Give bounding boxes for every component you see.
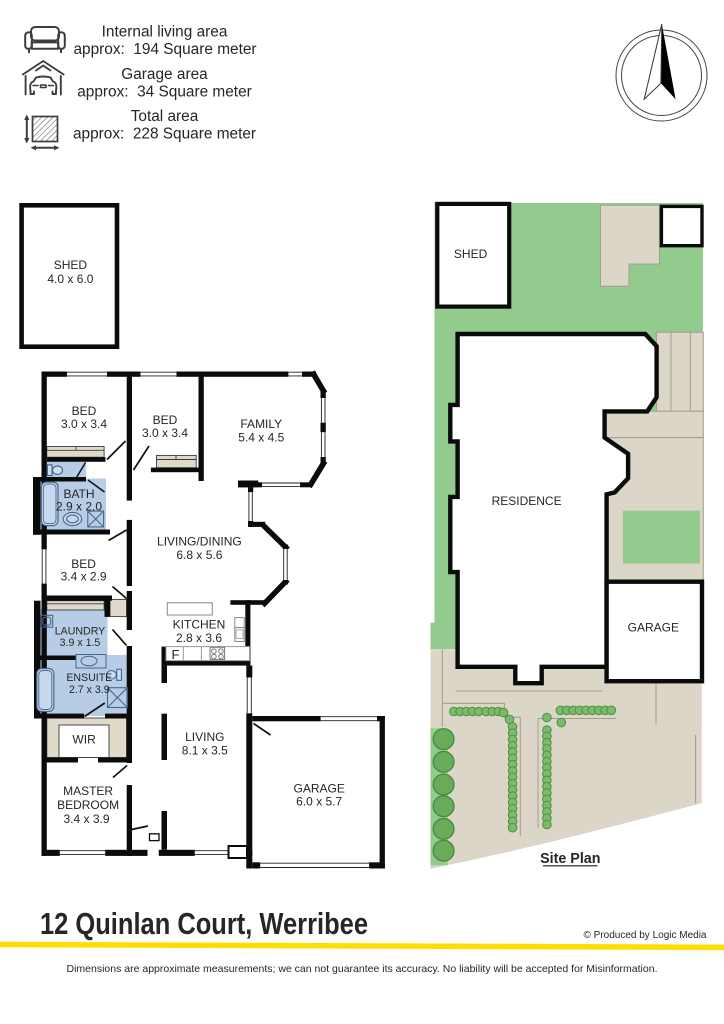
svg-text:LIVING/DINING: LIVING/DINING bbox=[157, 535, 242, 549]
svg-text:3.4 x 3.9: 3.4 x 3.9 bbox=[63, 812, 109, 826]
svg-text:Site Plan: Site Plan bbox=[540, 851, 600, 867]
svg-text:KITCHEN: KITCHEN bbox=[173, 618, 226, 632]
svg-text:6.0 x 5.7: 6.0 x 5.7 bbox=[296, 795, 342, 809]
svg-text:4.0 x 6.0: 4.0 x 6.0 bbox=[47, 272, 93, 286]
svg-text:MASTER: MASTER bbox=[63, 784, 113, 798]
svg-text:GARAGE: GARAGE bbox=[294, 782, 345, 796]
svg-text:6.8 x 5.6: 6.8 x 5.6 bbox=[176, 548, 222, 562]
svg-text:2.9 x 2.0: 2.9 x 2.0 bbox=[56, 500, 102, 514]
svg-text:SHED: SHED bbox=[54, 258, 88, 272]
svg-text:SHED: SHED bbox=[454, 247, 488, 261]
svg-text:FAMILY: FAMILY bbox=[240, 417, 282, 431]
svg-text:8.1 x 3.5: 8.1 x 3.5 bbox=[182, 744, 228, 758]
svg-text:LAUNDRY: LAUNDRY bbox=[55, 626, 105, 638]
svg-text:Internal living area: Internal living area bbox=[102, 24, 228, 41]
svg-text:approx: 194 Square meter: approx: 194 Square meter bbox=[73, 41, 256, 58]
svg-text:approx: 34 Square meter: approx: 34 Square meter bbox=[77, 84, 252, 101]
svg-text:3.0 x 3.4: 3.0 x 3.4 bbox=[61, 417, 107, 431]
svg-text:2.8 x 3.6: 2.8 x 3.6 bbox=[176, 631, 222, 645]
svg-text:5.4 x 4.5: 5.4 x 4.5 bbox=[238, 431, 284, 445]
svg-text:WIR: WIR bbox=[72, 733, 96, 747]
svg-text:LIVING: LIVING bbox=[185, 730, 224, 744]
svg-text:Garage area: Garage area bbox=[121, 66, 208, 83]
svg-text:3.9 x 1.5: 3.9 x 1.5 bbox=[60, 637, 101, 649]
svg-text:approx: 228 Square meter: approx: 228 Square meter bbox=[73, 126, 256, 143]
svg-text:2.7 x 3.9: 2.7 x 3.9 bbox=[69, 684, 110, 696]
svg-text:Dimensions are approximate mea: Dimensions are approximate measurements;… bbox=[67, 963, 658, 975]
svg-text:BED: BED bbox=[153, 413, 178, 427]
svg-text:ENSUITE: ENSUITE bbox=[66, 672, 112, 684]
svg-text:F: F bbox=[172, 647, 180, 662]
svg-text:BEDROOM: BEDROOM bbox=[57, 798, 119, 812]
svg-text:BED: BED bbox=[72, 404, 97, 418]
svg-text:RESIDENCE: RESIDENCE bbox=[492, 494, 562, 508]
svg-text:GARAGE: GARAGE bbox=[628, 621, 679, 635]
svg-text:12 Quinlan Court, Werribee: 12 Quinlan Court, Werribee bbox=[40, 907, 368, 941]
svg-text:3.4 x 2.9: 3.4 x 2.9 bbox=[61, 570, 107, 584]
svg-text:Total area: Total area bbox=[131, 108, 199, 125]
svg-text:© Produced by Logic Media: © Produced by Logic Media bbox=[584, 930, 707, 941]
svg-text:3.0 x 3.4: 3.0 x 3.4 bbox=[142, 426, 188, 440]
